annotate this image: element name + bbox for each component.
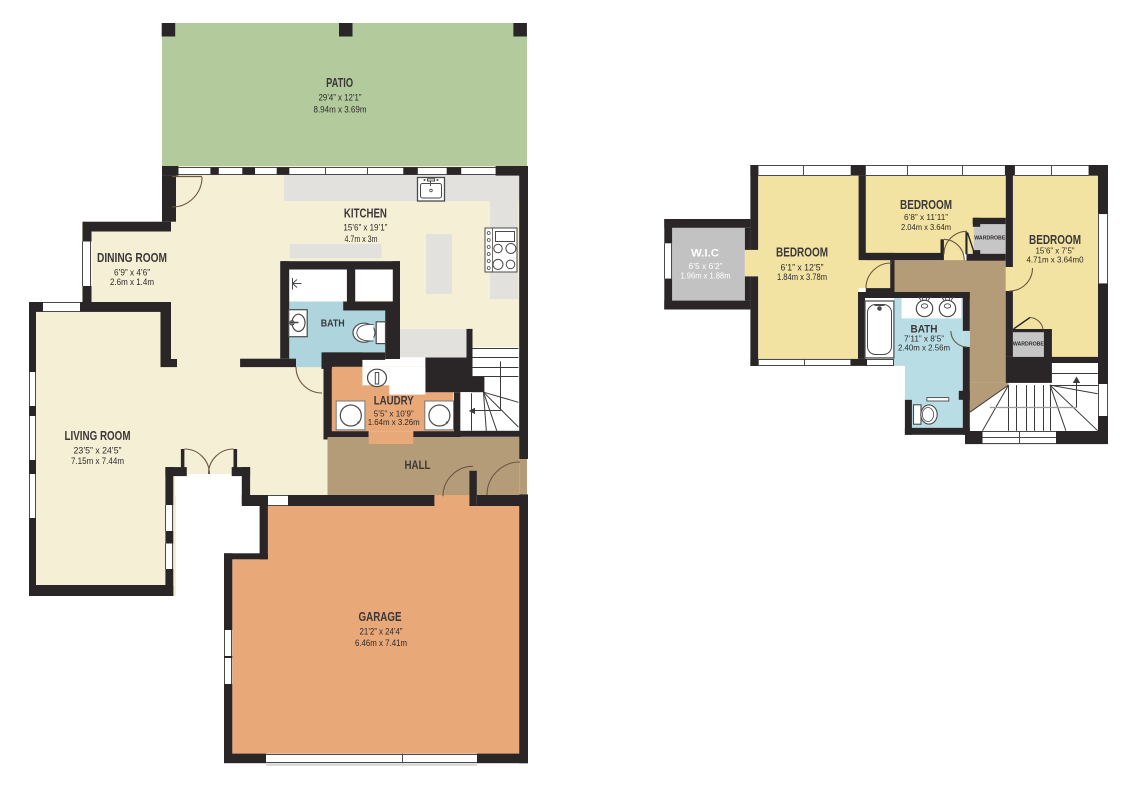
svg-text:2.40m x 2.56m: 2.40m x 2.56m <box>898 343 950 353</box>
svg-text:1.64m x 3.26m: 1.64m x 3.26m <box>368 417 420 427</box>
svg-text:6.46m x 7.41m: 6.46m x 7.41m <box>355 638 407 648</box>
svg-text:PATIO: PATIO <box>326 76 353 90</box>
svg-text:DINING ROOM: DINING ROOM <box>97 251 167 265</box>
svg-text:WARDROBE: WARDROBE <box>974 236 1005 242</box>
svg-text:WARDROBE: WARDROBE <box>1013 342 1044 348</box>
svg-text:15’6” x 19’1”: 15’6” x 19’1” <box>343 223 387 233</box>
svg-text:GARAGE: GARAGE <box>359 610 402 624</box>
svg-text:1.96m x 1.88m: 1.96m x 1.88m <box>681 271 731 281</box>
svg-text:HALL: HALL <box>405 460 431 472</box>
svg-text:2.6m x 1.4m: 2.6m x 1.4m <box>110 277 154 287</box>
svg-text:LIVING ROOM: LIVING ROOM <box>65 429 131 443</box>
svg-text:4.7m x 3m: 4.7m x 3m <box>345 234 378 244</box>
svg-text:BATH: BATH <box>321 318 345 330</box>
svg-text:W.I.C: W.I.C <box>691 248 719 260</box>
svg-text:2.04m x 3.64m: 2.04m x 3.64m <box>901 222 951 232</box>
svg-text:29’4” x 12’1”: 29’4” x 12’1” <box>319 93 362 103</box>
svg-text:BEDROOM: BEDROOM <box>900 198 952 212</box>
svg-text:LAUDRY: LAUDRY <box>374 396 414 408</box>
svg-text:KITCHEN: KITCHEN <box>344 207 387 221</box>
svg-text:21’2” x 24’4”: 21’2” x 24’4” <box>360 627 403 637</box>
svg-text:4.71m x 3.64m0: 4.71m x 3.64m0 <box>1027 255 1084 265</box>
svg-text:6’8” x 11’11”: 6’8” x 11’11” <box>904 212 948 222</box>
svg-text:6’5 x 6’2”: 6’5 x 6’2” <box>689 261 723 271</box>
svg-text:6’1” x 12’5”: 6’1” x 12’5” <box>781 263 824 273</box>
svg-text:7.15m x 7.44m: 7.15m x 7.44m <box>71 456 124 466</box>
svg-text:6’9” x 4’6”: 6’9” x 4’6” <box>114 267 150 277</box>
svg-text:8.94m x 3.69m: 8.94m x 3.69m <box>314 105 367 115</box>
svg-text:23’5” x 24’5”: 23’5” x 24’5” <box>74 446 122 456</box>
svg-text:1.84m x 3.78m: 1.84m x 3.78m <box>777 272 827 282</box>
svg-text:BEDROOM: BEDROOM <box>776 246 828 260</box>
